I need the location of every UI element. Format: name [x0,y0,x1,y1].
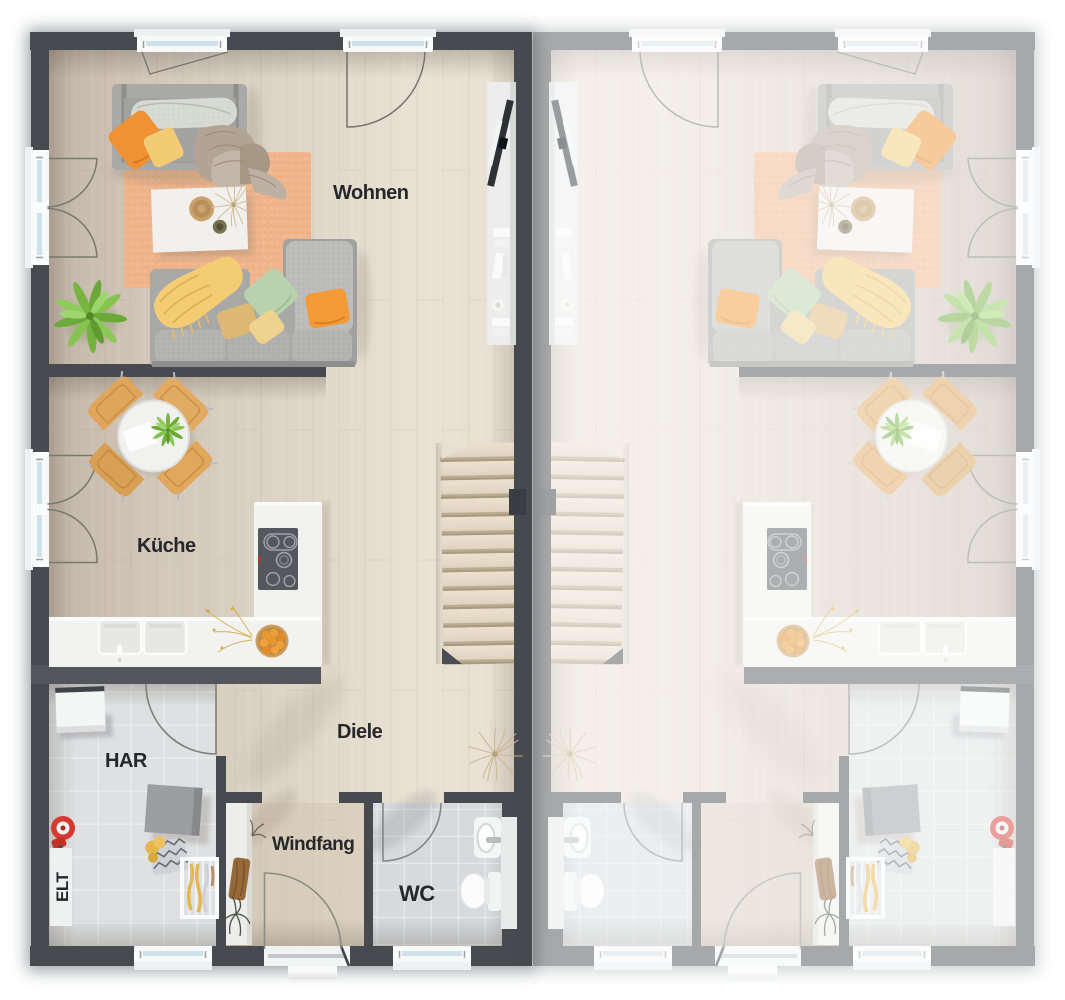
svg-text:ELT: ELT [53,872,72,902]
svg-text:Küche: Küche [137,535,196,557]
svg-text:Diele: Diele [337,721,383,743]
svg-text:Windfang: Windfang [272,834,354,855]
svg-text:Wohnen: Wohnen [333,182,409,204]
svg-text:WC: WC [399,881,435,906]
svg-text:HAR: HAR [105,750,148,772]
